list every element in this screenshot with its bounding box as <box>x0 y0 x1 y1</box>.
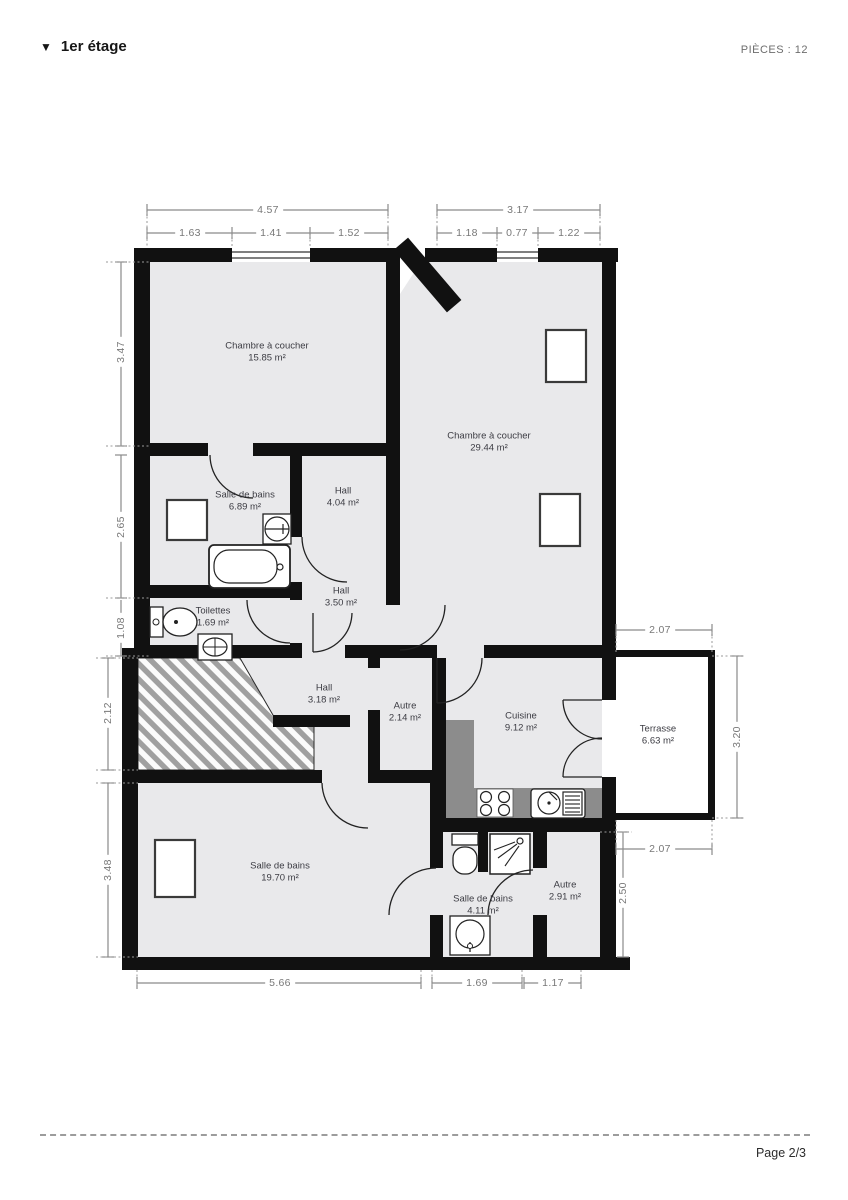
dim-label: 1.63 <box>175 227 205 239</box>
room-label-hall-3: Hall3.18 m² <box>308 683 340 706</box>
dim-label: 3.20 <box>731 722 743 752</box>
page-cut-line <box>40 1134 810 1136</box>
small-sink-icon <box>198 634 232 660</box>
dim-label: 3.17 <box>503 204 533 216</box>
floor-plan-drawing <box>0 0 848 1200</box>
stove-icon <box>477 789 513 817</box>
room-label-autre-2: Autre2.91 m² <box>549 880 581 903</box>
dim-label: 4.57 <box>253 204 283 216</box>
floorplan-page: ▼ 1er étage PIÈCES : 12 <box>0 0 848 1200</box>
dim-label: 1.08 <box>115 613 127 643</box>
dim-label: 3.48 <box>102 855 114 885</box>
washbasin-icon <box>450 916 490 955</box>
room-label-cuisine: Cuisine9.12 m² <box>505 711 537 734</box>
dim-label: 2.50 <box>617 878 629 908</box>
dim-label: 1.17 <box>538 977 568 989</box>
room-label-salle-de-bains-3: Salle de bains4.11 m² <box>453 894 513 917</box>
room-label-hall-2: Hall3.50 m² <box>325 586 357 609</box>
room-label-autre-1: Autre2.14 m² <box>389 701 421 724</box>
dim-label: 1.18 <box>452 227 482 239</box>
sink-icon <box>263 514 291 544</box>
room-label-hall-1: Hall4.04 m² <box>327 486 359 509</box>
dim-label: 0.77 <box>502 227 532 239</box>
room-label-chambre-2: Chambre à coucher29.44 m² <box>447 431 530 454</box>
dim-label: 2.65 <box>115 512 127 542</box>
room-label-chambre-1: Chambre à coucher15.85 m² <box>225 341 308 364</box>
page-number: Page 2/3 <box>756 1146 806 1160</box>
toilet-icon <box>452 834 478 874</box>
room-label-toilettes: Toilettes1.69 m² <box>196 606 231 629</box>
shower-icon <box>490 834 530 874</box>
dim-label: 1.41 <box>256 227 286 239</box>
dim-label: 2.07 <box>645 843 675 855</box>
room-label-salle-de-bains-2: Salle de bains19.70 m² <box>250 861 310 884</box>
floor-fill <box>134 248 708 957</box>
dim-label: 5.66 <box>265 977 295 989</box>
dim-label: 2.07 <box>645 624 675 636</box>
dim-label: 2.12 <box>102 698 114 728</box>
dim-label: 1.22 <box>554 227 584 239</box>
dim-label: 1.52 <box>334 227 364 239</box>
dim-label: 1.69 <box>462 977 492 989</box>
kitchen-sink-icon <box>531 789 585 818</box>
room-label-salle-de-bains-1: Salle de bains6.89 m² <box>215 490 275 513</box>
dim-label: 3.47 <box>115 337 127 367</box>
bathtub-icon <box>209 545 290 588</box>
toilet-icon <box>150 607 197 637</box>
room-label-terrasse: Terrasse6.63 m² <box>640 724 676 747</box>
